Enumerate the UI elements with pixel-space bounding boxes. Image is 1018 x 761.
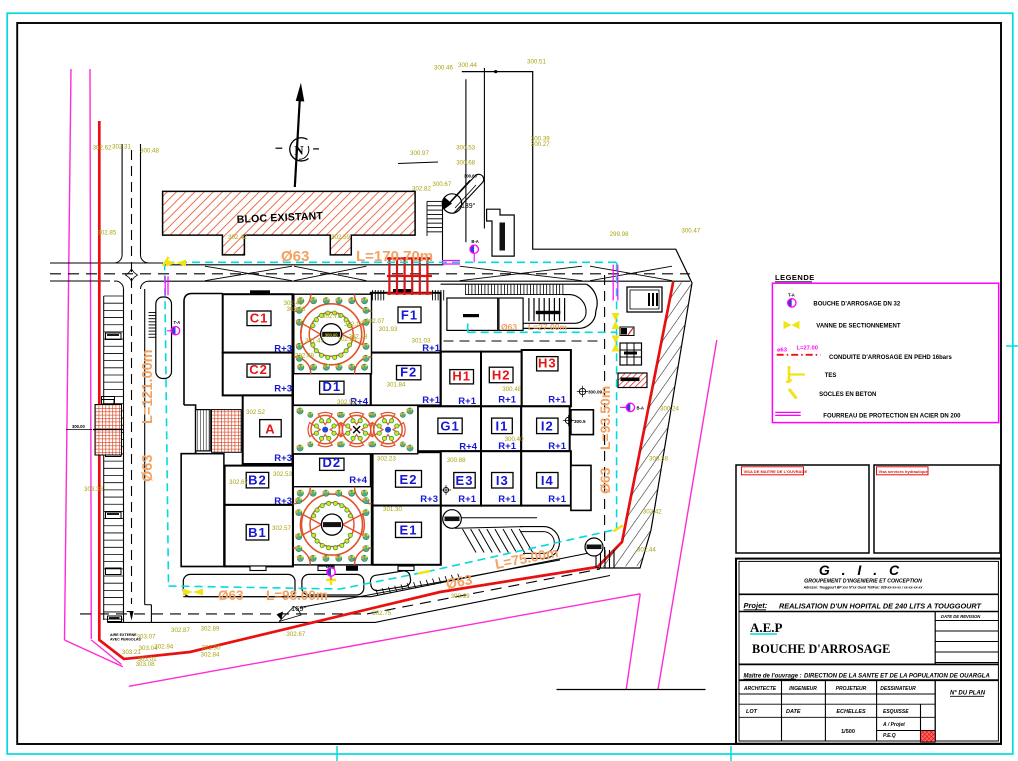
svg-text:302.55: 302.55 — [337, 399, 356, 406]
svg-text:VISA DE MAITRE DE L'OUVRAGE: VISA DE MAITRE DE L'OUVRAGE — [744, 469, 808, 474]
svg-text:302.82: 302.82 — [412, 186, 431, 193]
svg-text:R+3: R+3 — [274, 384, 292, 395]
svg-text:Visa services hydraulique: Visa services hydraulique — [879, 469, 929, 474]
svg-text:302.52: 302.52 — [246, 409, 265, 416]
svg-text:300.88: 300.88 — [447, 457, 466, 464]
svg-text:R+4: R+4 — [349, 475, 367, 486]
svg-text:301.84: 301.84 — [387, 382, 406, 389]
svg-text:DESSINATEUR: DESSINATEUR — [880, 686, 916, 692]
svg-text:302.73: 302.73 — [322, 313, 341, 320]
svg-text:C1: C1 — [250, 310, 269, 325]
svg-text:302.49: 302.49 — [295, 353, 314, 360]
svg-text:303.21: 303.21 — [122, 649, 141, 656]
svg-text:C2: C2 — [249, 362, 268, 377]
svg-text:H1: H1 — [452, 369, 471, 384]
svg-text:G . I . C: G . I . C — [819, 562, 903, 578]
svg-text:300.60: 300.60 — [464, 174, 477, 179]
svg-text:L=27.00m: L=27.00m — [528, 322, 567, 332]
svg-text:T-A: T-A — [788, 293, 795, 298]
svg-text:302.99: 302.99 — [451, 593, 470, 600]
svg-text:300.48: 300.48 — [140, 148, 159, 155]
svg-text:VANNE DE SECTIONNEMENT: VANNE DE SECTIONNEMENT — [816, 323, 901, 329]
svg-text:300.24: 300.24 — [660, 406, 679, 413]
svg-text:300.38: 300.38 — [649, 456, 668, 463]
svg-text:GROUPEMENT D'INGENIERIE ET CON: GROUPEMENT D'INGENIERIE ET CONCEPTION — [804, 579, 922, 585]
svg-text:302.33: 302.33 — [338, 336, 357, 343]
svg-text:300.68: 300.68 — [456, 160, 475, 167]
svg-text:TES: TES — [825, 373, 837, 379]
svg-text:301.93: 301.93 — [379, 326, 398, 333]
svg-text:AVEC PERGOLAS: AVEC PERGOLAS — [110, 638, 141, 642]
svg-text:302.42: 302.42 — [643, 509, 662, 516]
svg-text:R+1: R+1 — [548, 441, 566, 452]
svg-text:L=121.00m: L=121.00m — [140, 349, 156, 424]
svg-text:PROJETEUR: PROJETEUR — [836, 686, 867, 692]
svg-text:T-A: T-A — [174, 320, 181, 325]
svg-text:302.62: 302.62 — [93, 145, 112, 152]
svg-text:300.67: 300.67 — [432, 181, 451, 188]
svg-text:F2: F2 — [400, 365, 417, 380]
svg-text:R+3: R+3 — [420, 494, 438, 505]
svg-text:300.46: 300.46 — [434, 65, 453, 72]
svg-text:Maitre de l'ouvrage :: Maitre de l'ouvrage : — [744, 674, 802, 680]
svg-text:300.00: 300.00 — [72, 424, 85, 429]
svg-text:AIRE EXTERNE: AIRE EXTERNE — [110, 633, 137, 637]
svg-text:N° DU PLAN: N° DU PLAN — [950, 691, 986, 697]
svg-text:300.97: 300.97 — [410, 150, 429, 157]
svg-text:R+1: R+1 — [498, 494, 516, 505]
svg-text:R+1: R+1 — [498, 395, 516, 406]
svg-text:I4: I4 — [541, 473, 554, 488]
svg-text:300.27: 300.27 — [531, 141, 550, 148]
svg-text:Adresse: Touggourt BP xxx N°x: Adresse: Touggourt BP xxx N°xx Oued Tel/… — [803, 585, 923, 589]
svg-text:139°: 139° — [461, 202, 476, 210]
svg-text:302.84: 302.84 — [201, 652, 220, 659]
svg-text:D1: D1 — [322, 379, 341, 394]
svg-text:I1: I1 — [496, 418, 509, 433]
svg-text:B2: B2 — [248, 473, 267, 488]
svg-text:Ø63: Ø63 — [218, 588, 244, 603]
svg-text:300.51: 300.51 — [527, 59, 546, 66]
svg-text:302.31: 302.31 — [112, 144, 131, 151]
svg-text:A / Projet: A / Projet — [882, 722, 905, 728]
svg-text:DIRECTION DE LA SANTE ET DE LA: DIRECTION DE LA SANTE ET DE LA POPULATIO… — [804, 674, 990, 680]
svg-text:300.48: 300.48 — [502, 386, 521, 393]
svg-text:L=27.00: L=27.00 — [797, 346, 818, 352]
svg-text:302.75: 302.75 — [372, 610, 391, 617]
svg-text:Ø63: Ø63 — [140, 455, 156, 482]
svg-text:ø63: ø63 — [777, 348, 788, 354]
svg-text:302.85: 302.85 — [97, 230, 116, 237]
svg-text:L=98.00m: L=98.00m — [266, 588, 328, 603]
svg-text:300.53: 300.53 — [456, 145, 475, 152]
svg-text:E3: E3 — [456, 473, 474, 488]
svg-text:F1: F1 — [401, 308, 418, 323]
svg-text:BOUCHE D'ARROSAGE: BOUCHE D'ARROSAGE — [752, 642, 890, 656]
svg-text:300.44: 300.44 — [458, 62, 477, 69]
svg-text:303.38: 303.38 — [84, 486, 103, 493]
svg-text:R+1: R+1 — [548, 395, 566, 406]
svg-text:302.90: 302.90 — [202, 645, 221, 652]
svg-text:R+1: R+1 — [422, 395, 440, 406]
svg-text:302.89: 302.89 — [201, 626, 220, 633]
svg-text:302.44: 302.44 — [637, 547, 656, 554]
svg-text:300.00: 300.00 — [325, 332, 338, 337]
svg-text:P.E.Q: P.E.Q — [883, 733, 896, 739]
svg-text:I2: I2 — [541, 418, 554, 433]
svg-text:302.53: 302.53 — [273, 471, 292, 478]
svg-text:302.94: 302.94 — [154, 644, 173, 651]
svg-text:ARCHITECTE: ARCHITECTE — [743, 686, 777, 692]
svg-text:I3: I3 — [496, 473, 509, 488]
svg-text:300.40: 300.40 — [505, 436, 524, 443]
svg-text:302.67: 302.67 — [286, 631, 305, 638]
svg-text:R+3: R+3 — [274, 453, 292, 464]
svg-text:B-A: B-A — [471, 239, 478, 244]
svg-text:ECHELLES: ECHELLES — [836, 709, 866, 715]
svg-text:302.42: 302.42 — [228, 234, 247, 241]
svg-text:B-A: B-A — [637, 406, 644, 411]
svg-text:1/500: 1/500 — [841, 729, 855, 735]
svg-text:E2: E2 — [400, 472, 418, 487]
svg-text:FOURREAU DE PROTECTION EN ACIE: FOURREAU DE PROTECTION EN ACIER DN 200 — [823, 414, 961, 420]
svg-text:LOT: LOT — [746, 709, 758, 715]
svg-text:DATE DE REVISION: DATE DE REVISION — [941, 614, 981, 619]
svg-text:299.98: 299.98 — [610, 231, 629, 238]
svg-text:DATE: DATE — [786, 709, 801, 715]
svg-text:301.03: 301.03 — [412, 338, 431, 345]
svg-text:R+1: R+1 — [458, 494, 476, 505]
svg-text:302.59: 302.59 — [331, 234, 350, 241]
svg-text:302.23: 302.23 — [377, 456, 396, 463]
svg-text:R+1: R+1 — [548, 494, 566, 505]
svg-text:A.E.P: A.E.P — [750, 620, 783, 635]
svg-text:300.5: 300.5 — [574, 419, 586, 424]
svg-text:Ø63: Ø63 — [281, 248, 309, 265]
svg-text:N: N — [294, 143, 304, 158]
svg-text:302.67: 302.67 — [229, 479, 248, 486]
svg-text:D2: D2 — [322, 455, 341, 470]
svg-text:302.16: 302.16 — [344, 321, 363, 328]
svg-text:H3: H3 — [538, 356, 557, 371]
svg-text:302.66: 302.66 — [287, 306, 306, 313]
svg-text:303.08: 303.08 — [136, 661, 155, 668]
svg-text:L=170.70m: L=170.70m — [356, 248, 433, 265]
svg-text:302.87: 302.87 — [171, 627, 190, 634]
svg-text:300.47: 300.47 — [681, 228, 700, 235]
svg-text:B-A: B-A — [326, 564, 333, 569]
svg-text:169°: 169° — [291, 604, 307, 613]
svg-text:A: A — [265, 422, 275, 437]
svg-text:ESQUISSE: ESQUISSE — [883, 709, 909, 715]
svg-text:REALISATION D'UN HOPITAL DE 24: REALISATION D'UN HOPITAL DE 240 LITS A T… — [779, 602, 982, 611]
svg-text:CONDUITE D'ARROSAGE EN PEHD 16: CONDUITE D'ARROSAGE EN PEHD 16bars — [829, 355, 952, 361]
svg-text:SOCLES EN BETON: SOCLES EN BETON — [819, 392, 876, 398]
svg-text:L=93.50m: L=93.50m — [597, 386, 613, 450]
svg-text:H2: H2 — [492, 368, 511, 383]
svg-text:301.47: 301.47 — [305, 338, 324, 345]
svg-text:G1: G1 — [440, 418, 459, 433]
svg-text:Ø63: Ø63 — [501, 322, 517, 332]
svg-text:302.57: 302.57 — [272, 525, 291, 532]
svg-text:BOUCHE D'ARROSAGE DN 32: BOUCHE D'ARROSAGE DN 32 — [813, 302, 900, 308]
svg-text:INGENIEUR: INGENIEUR — [789, 686, 817, 692]
svg-text:E1: E1 — [400, 522, 418, 537]
svg-text:B1: B1 — [248, 525, 267, 540]
svg-text:LEGENDE: LEGENDE — [775, 273, 815, 282]
svg-text:Ø63: Ø63 — [597, 467, 613, 494]
svg-text:301.30: 301.30 — [383, 506, 402, 513]
svg-text:302.07: 302.07 — [366, 318, 385, 325]
svg-text:Projet:: Projet: — [744, 601, 768, 610]
